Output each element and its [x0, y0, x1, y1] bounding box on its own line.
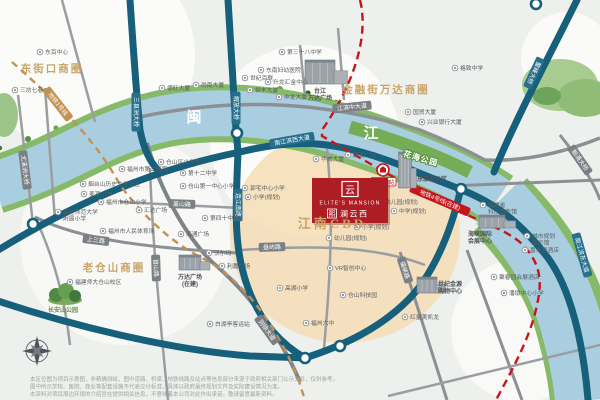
poi-label: 喜来登酒店	[530, 246, 559, 254]
poi-dot-core	[121, 168, 123, 170]
poi-label: 海通广场	[186, 230, 209, 238]
road-label-text: 连江南路	[234, 193, 242, 217]
poi-dot-core	[138, 209, 140, 211]
district-label: 闽	[186, 108, 201, 126]
poi-dot-core	[393, 210, 395, 212]
poi-dot-core	[14, 89, 16, 91]
poi-label: 红星美凯龙	[410, 313, 439, 321]
poi-label: 福州市人民体育场	[108, 227, 155, 235]
building-label: 台江	[314, 87, 326, 95]
poi-label: 国贸大厦	[413, 108, 436, 116]
poi-dot-core	[279, 287, 281, 289]
poi-label: 郭宅中心小学	[250, 184, 285, 192]
poi-label: 第十二中学	[188, 169, 217, 177]
disclaimer-line: 图中所示学校、医院、商业等配套设施不代表交付标准，具体以政府最终规划文件及实际建…	[30, 383, 283, 391]
poi-dot-core	[102, 230, 104, 232]
poi-dot-core	[454, 67, 456, 69]
poi-label: 第三十八中学	[287, 48, 322, 56]
poi-label: 附属小学	[63, 215, 86, 223]
poi-label: 展示馆	[532, 239, 550, 247]
poi-marker: 仓山第一中心小学	[180, 182, 234, 190]
poi-dot-core	[526, 235, 528, 237]
poi-label: 仓山科技园	[348, 291, 377, 299]
poi-dot-core	[503, 292, 505, 294]
poi-dot-core	[160, 161, 162, 163]
poi-dot-core	[82, 183, 84, 185]
road-node	[28, 219, 38, 229]
district-label: 老仓山商圈	[82, 261, 146, 274]
road-label-text: 解放大桥	[232, 96, 240, 120]
poi-dot-core	[421, 121, 423, 123]
poi-dot-core	[244, 187, 246, 189]
poi-label: 福建师大仓山校区	[75, 278, 122, 286]
poi-label: 第四十中学	[210, 214, 239, 222]
logo-glyph: 云	[345, 186, 355, 197]
poi-label: 升龙汇金中心	[273, 78, 308, 86]
logo-name-en: ELITE'S MANSION	[320, 201, 381, 207]
building-roof	[305, 60, 335, 63]
poi-dot-core	[493, 276, 495, 278]
map-canvas: 南江滨西大道江滨中大道三县洲大桥解放大桥鳌峰大桥魁浦大桥南江滨东大道连江南路上三…	[0, 0, 600, 400]
poi-dot-core	[195, 84, 197, 86]
poi-dot-core	[260, 69, 262, 71]
poi-dot-core	[83, 193, 85, 195]
poi-dot-core	[180, 233, 182, 235]
tree-icon	[25, 136, 31, 142]
poi-dot-core	[39, 51, 41, 53]
poi-dot-core	[281, 51, 283, 53]
poi-label: 尚南大厦	[201, 81, 224, 89]
poi-label: 格致中学	[460, 64, 483, 72]
poi-dot-core	[57, 211, 59, 213]
poi-label: 东百中心	[45, 48, 68, 56]
poi-label: 东南妇幼医院	[266, 66, 301, 74]
building-label: 购物中心	[438, 287, 462, 295]
district-label: 金融街万达商圈	[341, 83, 430, 96]
disclaimer-line: 本资料对项目周边环境的介绍旨在提供相关信息，不意味着本公司对此作出承诺。敬请留意…	[30, 390, 278, 398]
road-label: 三县洲大桥	[132, 93, 141, 132]
building-annex	[411, 168, 417, 188]
building-roof	[179, 255, 201, 258]
district-label: 江南CBD	[298, 216, 366, 231]
poi-label: 建发广场	[353, 151, 376, 159]
poi-dot-core	[278, 96, 280, 98]
poi-label: 利嘉广场	[227, 262, 250, 270]
building-label: 海峡国际	[468, 230, 492, 238]
poi-dot-core	[182, 185, 184, 187]
poi-label: 三坊七巷	[20, 86, 43, 94]
poi-label: 仓山区少年宫	[166, 158, 201, 166]
poi-label: 小学(规划)	[253, 193, 280, 201]
location-map: 南江滨西大道江滨中大道三县洲大桥解放大桥鳌峰大桥魁浦大桥南江滨东大道连江南路上三…	[0, 0, 600, 400]
building-label: 世纪金源	[438, 280, 462, 288]
district-label: 江	[363, 124, 378, 142]
poi-label: 中学(规划)	[399, 207, 426, 215]
poi-label: 福建师范大学	[63, 208, 98, 216]
poi-label: 仓山第一中心小学	[188, 182, 235, 190]
poi-dot-core	[244, 77, 246, 79]
road-label: 首山路	[151, 255, 161, 282]
poi-dot-core	[221, 265, 223, 267]
disclaimer-line: 本区位图为项目示意图，非精确测绘，图中道路、桥梁、地铁线路及站点等信息部分来源于…	[30, 375, 338, 383]
poi-label: VR智创中心	[335, 264, 366, 272]
poi-dot-core	[404, 316, 406, 318]
district-label: 长安山公园	[48, 306, 78, 314]
poi-marker: 福建师大仓山校区	[67, 278, 121, 286]
poi-label: 福州市第二医院	[127, 165, 168, 173]
building-roof	[417, 277, 437, 280]
poi-dot-core	[328, 237, 330, 239]
poi-label: 高湖小学	[285, 284, 308, 292]
poi-dot-core	[100, 201, 102, 203]
road-node	[232, 128, 242, 138]
poi-dot-core	[315, 158, 317, 160]
poi-label: 汇达广场	[144, 206, 167, 214]
poi-marker: 福州市人民体育场	[100, 227, 154, 235]
building-annex	[200, 262, 210, 270]
poi-dot-core	[342, 294, 344, 296]
poi-dot-core	[249, 89, 251, 91]
poi-dot-core	[69, 281, 71, 283]
poi-label: 沃尔玛	[214, 249, 232, 257]
road-label: 盖山路	[169, 199, 196, 209]
poi-label: 城市规划	[532, 232, 555, 240]
poi-dot-core	[329, 267, 331, 269]
road-label: 盘屿路	[259, 242, 286, 252]
poi-dot-core	[182, 172, 184, 174]
poi-dot-core	[267, 81, 269, 83]
building-label: (在建)	[182, 280, 198, 288]
poi-label: 德旺大厦	[167, 84, 190, 92]
poi-dot-core	[247, 196, 249, 198]
building-annex	[504, 221, 516, 228]
building-annex	[334, 71, 348, 84]
poi-label: 华威大厦	[321, 155, 344, 163]
road-label-text: 三县洲大桥	[132, 97, 140, 127]
poi-dot-core	[347, 154, 349, 156]
poi-marker: 福州市仓山小学	[98, 198, 147, 206]
poi-label: 烟台山历史文化街区	[88, 180, 140, 188]
poi-dot-core	[204, 217, 206, 219]
east-hill-3	[533, 87, 561, 105]
poi-dot-core	[482, 204, 484, 206]
park-tree-icon	[69, 290, 81, 302]
poi-label: 幼儿园(规划)	[334, 234, 367, 242]
poi-label: 申发大厦	[284, 93, 307, 101]
poi-label: 聚春园会展酒店	[499, 273, 540, 281]
poi-dot-core	[524, 249, 526, 251]
poi-marker: 沃尔玛	[206, 249, 231, 257]
road-node	[456, 184, 466, 194]
building-label: 万达广场	[177, 273, 202, 281]
district-label: 东街口商圈	[21, 62, 84, 75]
poi-dot-core	[161, 87, 163, 89]
poi-label: 福州市仓山小学	[106, 198, 147, 206]
poi-marker: 聚春园会展酒店	[491, 273, 540, 281]
poi-label: 麦顶小学	[89, 190, 112, 198]
poi-dot-core	[209, 323, 211, 325]
building-label: 万达广场	[307, 94, 332, 102]
road-label: 解放大桥	[232, 92, 241, 125]
road-node	[335, 341, 345, 351]
road-node	[300, 353, 310, 363]
poi-dot-core	[208, 252, 210, 254]
poi-label: 潘墩中心小学	[509, 289, 544, 297]
poi-label: 兴业银行大厦	[427, 118, 462, 126]
poi-label: 恒丰大厦	[255, 86, 278, 94]
poi-marker: 福州市第二医院	[119, 165, 168, 173]
poi-dot-core	[407, 111, 409, 113]
poi-label: 白湖亭客运站	[215, 320, 250, 328]
poi-marker: 烟台山历史文化街区	[80, 180, 140, 188]
poi-label: 科技馆新馆	[488, 208, 517, 216]
poi-label: 福建省	[488, 201, 506, 209]
building-label: 会展中心	[468, 237, 492, 245]
building-label: 东部办公区	[417, 175, 447, 183]
poi-dot-core	[305, 322, 307, 324]
road-node	[531, 0, 541, 9]
poi-label: 福州六中	[311, 319, 334, 327]
